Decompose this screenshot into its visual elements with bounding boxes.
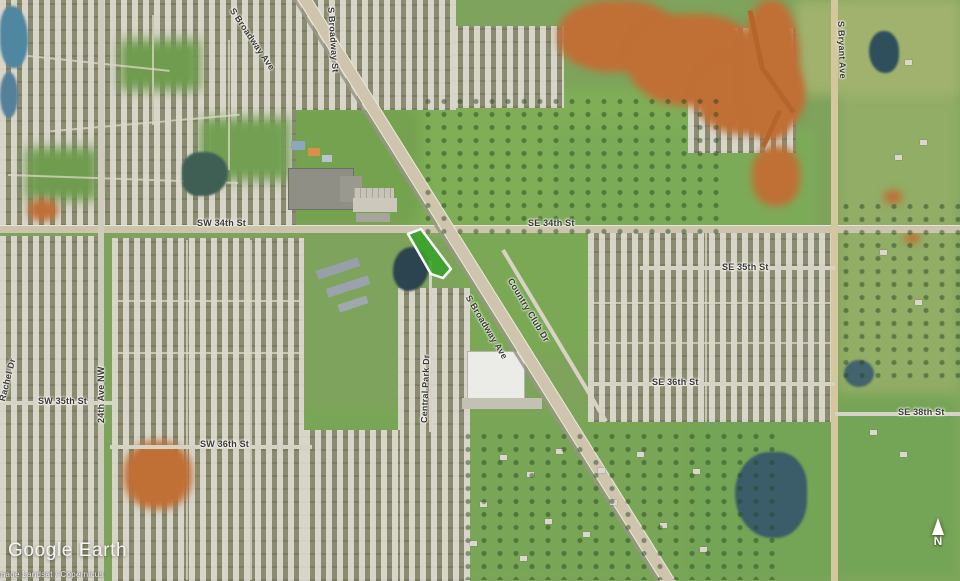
parcel-overlay	[0, 0, 960, 581]
street-label-s-bryant-ave: S Bryant Ave	[836, 21, 848, 79]
compass[interactable]: N	[925, 518, 951, 547]
street-label-se-38th-st: SE 38th St	[898, 407, 945, 417]
street-label-se-35th-st: SE 35th St	[722, 262, 769, 272]
highlighted-parcel[interactable]	[408, 229, 451, 278]
street-label-24th-ave-nw: 24th Ave NW	[96, 366, 106, 423]
street-label-se-34th-st: SE 34th St	[528, 218, 575, 228]
street-label-se-36th-st: SE 36th St	[652, 377, 699, 387]
map-canvas[interactable]: S Broadway Ave S Broadway St SW 34th St …	[0, 0, 960, 581]
google-earth-logo: Google Earth	[8, 540, 127, 562]
north-arrow-icon	[932, 518, 944, 535]
street-label-sw-34th-st: SW 34th St	[197, 218, 246, 228]
imagery-attribution: Image Landsat / Copernicus	[0, 570, 104, 579]
street-label-sw-36th-st: SW 36th St	[200, 439, 249, 449]
compass-north-label: N	[925, 535, 951, 547]
street-label-sw-35th-st: SW 35th St	[38, 396, 87, 406]
